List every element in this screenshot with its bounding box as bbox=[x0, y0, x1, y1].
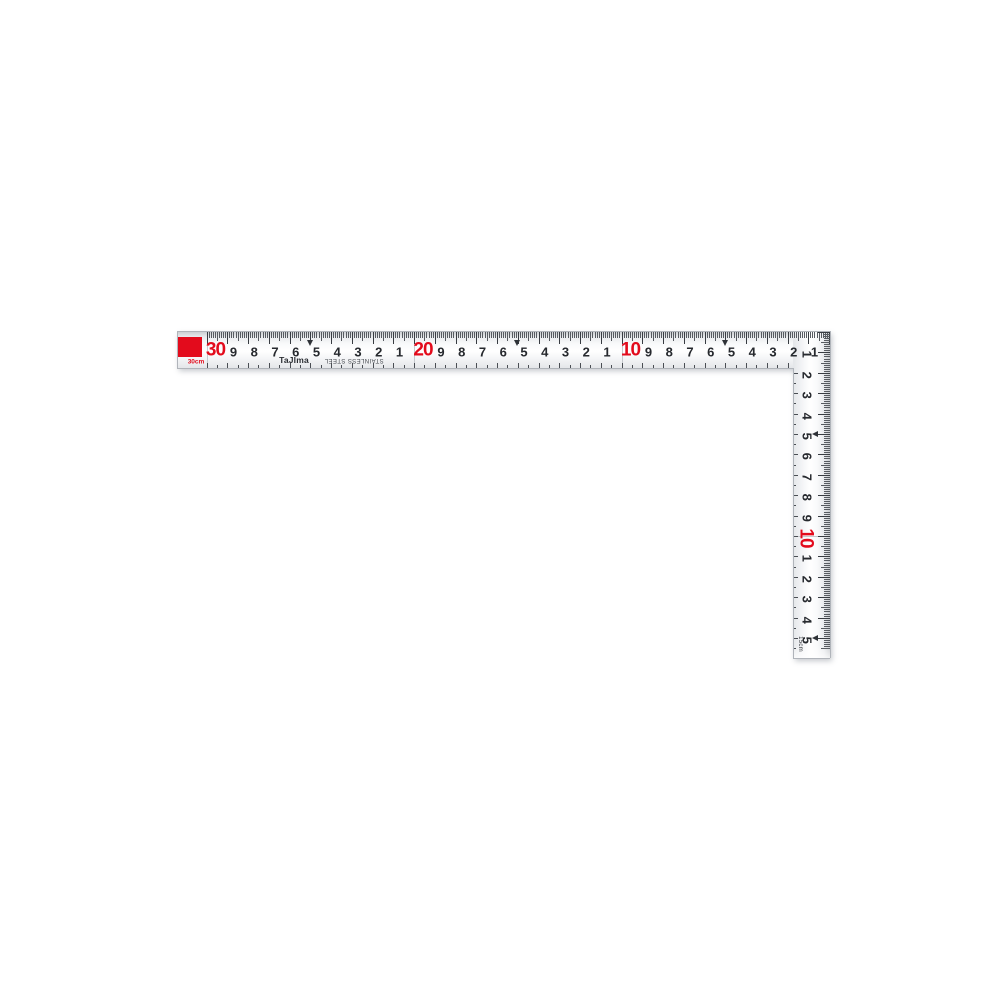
carpenter-square bbox=[0, 0, 1000, 1000]
vertical-blade bbox=[793, 331, 830, 658]
product-image: 30cm TaJIma STAINLESS STEEL 15cm 1234567… bbox=[0, 0, 1000, 1000]
horizontal-blade bbox=[177, 331, 830, 368]
blade-end-cap bbox=[793, 645, 830, 658]
